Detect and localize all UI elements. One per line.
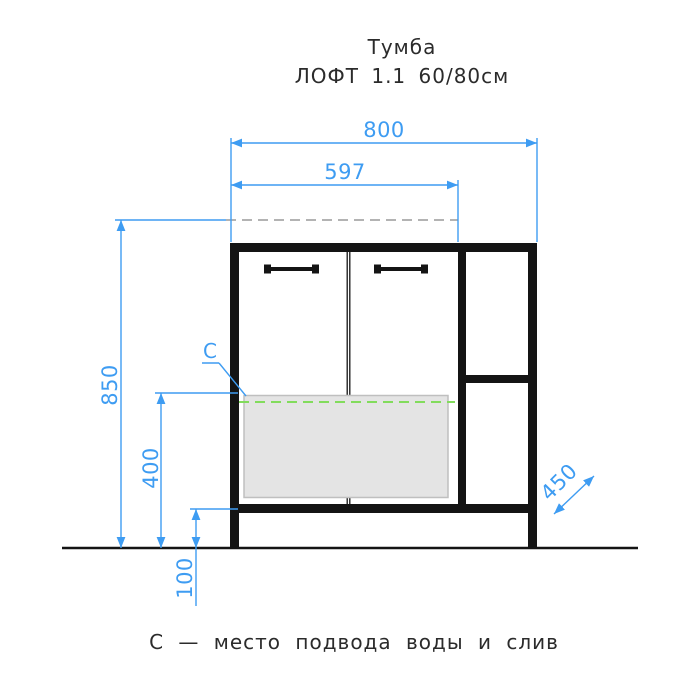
cabinet-right-wall [528,243,537,512]
dimension-label-depth: 450 [536,459,582,505]
cabinet-right-leg [528,513,537,548]
dimension-label-basin-width: 597 [324,160,366,184]
cabinet-top-frame [230,243,537,252]
left-handle-bar [264,267,319,271]
cabinet-shelf-divider [466,375,528,383]
dimension-label-connection-height: 400 [139,447,163,489]
cabinet-bottom-bar [230,504,537,513]
cabinet-left-leg [230,513,239,548]
drawing-caption: С — место подвода воды и слив [8,630,700,654]
cabinet-dimension-drawing: 800 597 850 400 100 450 C [0,0,700,700]
left-handle-cap-right [312,265,319,274]
dimension-597: 597 [231,160,458,242]
right-handle-cap-left [374,265,381,274]
left-handle-cap-left [264,265,271,274]
drawing-page: Тумба ЛОФТ 1.1 60/80см [0,0,700,700]
left-door-handle [264,265,319,274]
dimension-400: 400 [139,393,238,548]
dimension-label-total-height: 850 [98,364,122,406]
sink-zone-area [244,396,448,498]
dimension-800: 800 [231,118,537,242]
dimension-label-outer-width: 800 [363,118,405,142]
cabinet-vertical-divider [458,252,466,504]
connection-mark-callout: C [202,339,246,396]
dimension-label-plinth-height: 100 [173,557,197,599]
right-door-handle [374,265,428,274]
dimension-450-depth: 450 [536,459,594,514]
dimension-850: 850 [98,220,226,548]
right-handle-cap-right [421,265,428,274]
right-handle-bar [374,267,428,271]
connection-mark-label: C [203,339,217,363]
dimension-100: 100 [173,509,238,606]
